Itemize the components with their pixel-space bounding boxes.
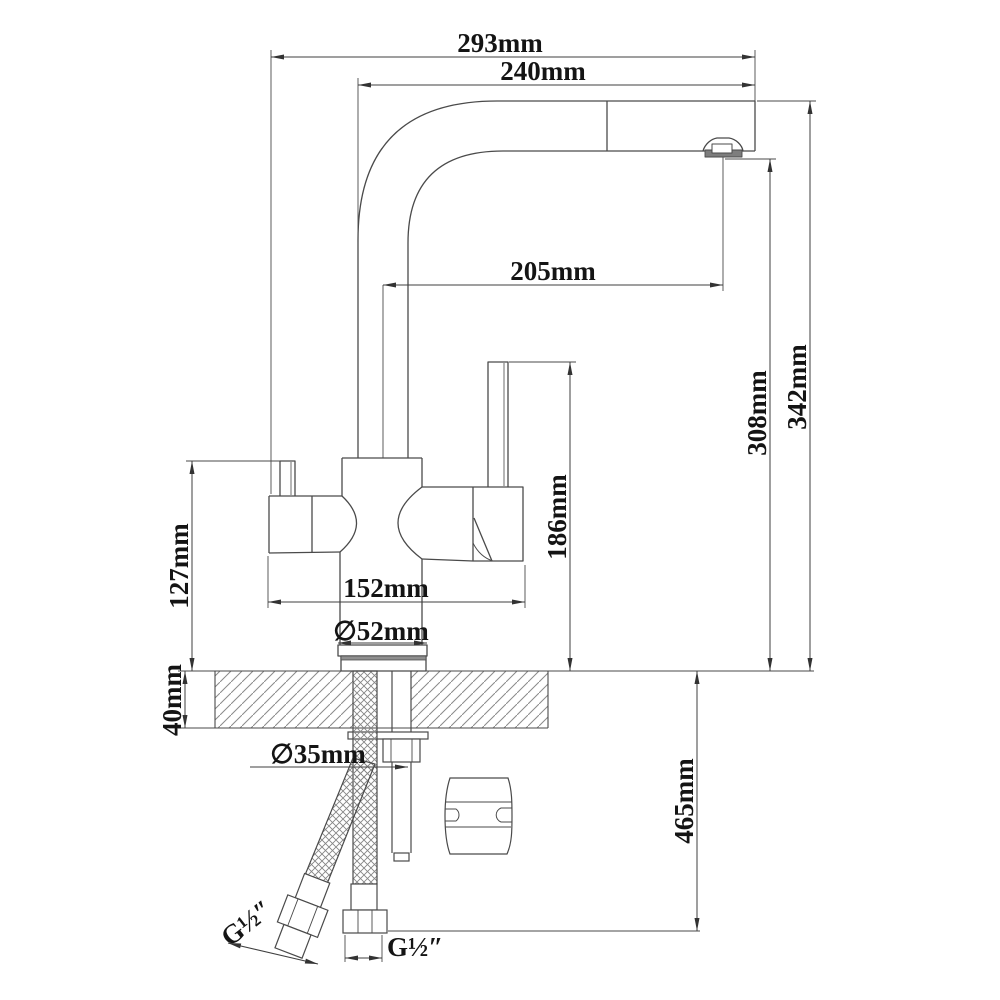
dim-label-293: 293mm (457, 28, 543, 58)
mounting-nut-slot-right (496, 808, 512, 822)
right-handle-lever-line (474, 518, 492, 561)
fitting-collar (351, 884, 377, 910)
aerator-outlet (712, 144, 732, 153)
countertop-hatch-left (215, 671, 353, 728)
threaded-rod (392, 762, 411, 853)
right-handle-arc (473, 543, 493, 561)
dim-label-35: ∅35mm (270, 739, 366, 769)
dimension-lines (185, 57, 810, 964)
spout-inner-curve (408, 151, 503, 458)
body-left-waist-arc (340, 496, 357, 552)
body-right-waist-arc (398, 487, 422, 559)
dim-label-308: 308mm (742, 370, 772, 456)
dimension-labels: 293mm 240mm 205mm 342mm 308mm 186mm 127m… (157, 28, 812, 962)
extension-lines (186, 50, 816, 962)
dim-label-205: 205mm (510, 256, 596, 286)
dim-label-152: 152mm (343, 573, 429, 603)
mounting-nut-groove-lines (445, 802, 512, 827)
mounting-nut (445, 778, 512, 854)
left-handle-stub (280, 461, 295, 496)
dim-label-40: 40mm (157, 664, 187, 736)
dim-label-127: 127mm (164, 523, 194, 609)
mounting-nut-outline (445, 778, 512, 854)
thread-label-bottom: G½″ (387, 932, 443, 962)
base-flange (338, 645, 427, 656)
dim-label-465: 465mm (669, 758, 699, 844)
right-handle-block (422, 487, 523, 561)
shank-nut (383, 739, 420, 762)
dim-label-240: 240mm (500, 56, 586, 86)
shank-tube (392, 671, 411, 732)
fitting-hex (343, 910, 387, 933)
hose-fitting-bottom (343, 884, 387, 933)
faucet-dimension-drawing: 293mm 240mm 205mm 342mm 308mm 186mm 127m… (0, 0, 1000, 1000)
threaded-rod-tip (394, 853, 409, 861)
dim-label-52: ∅52mm (333, 616, 429, 646)
thread-label-left: G½″ (215, 894, 278, 952)
dim-label-186: 186mm (542, 474, 572, 560)
faucet-outline (269, 101, 755, 671)
right-lever-pipe (488, 362, 508, 487)
mounting-nut-slot-left (445, 809, 459, 821)
countertop-hatch-right (411, 671, 548, 728)
hose-fitting-left (268, 871, 337, 961)
base-ring-dark-band (341, 656, 426, 660)
dim-label-342: 342mm (782, 344, 812, 430)
technical-drawing-sheet: 293mm 240mm 205mm 342mm 308mm 186mm 127m… (0, 0, 1000, 1000)
left-handle-block (269, 496, 342, 553)
